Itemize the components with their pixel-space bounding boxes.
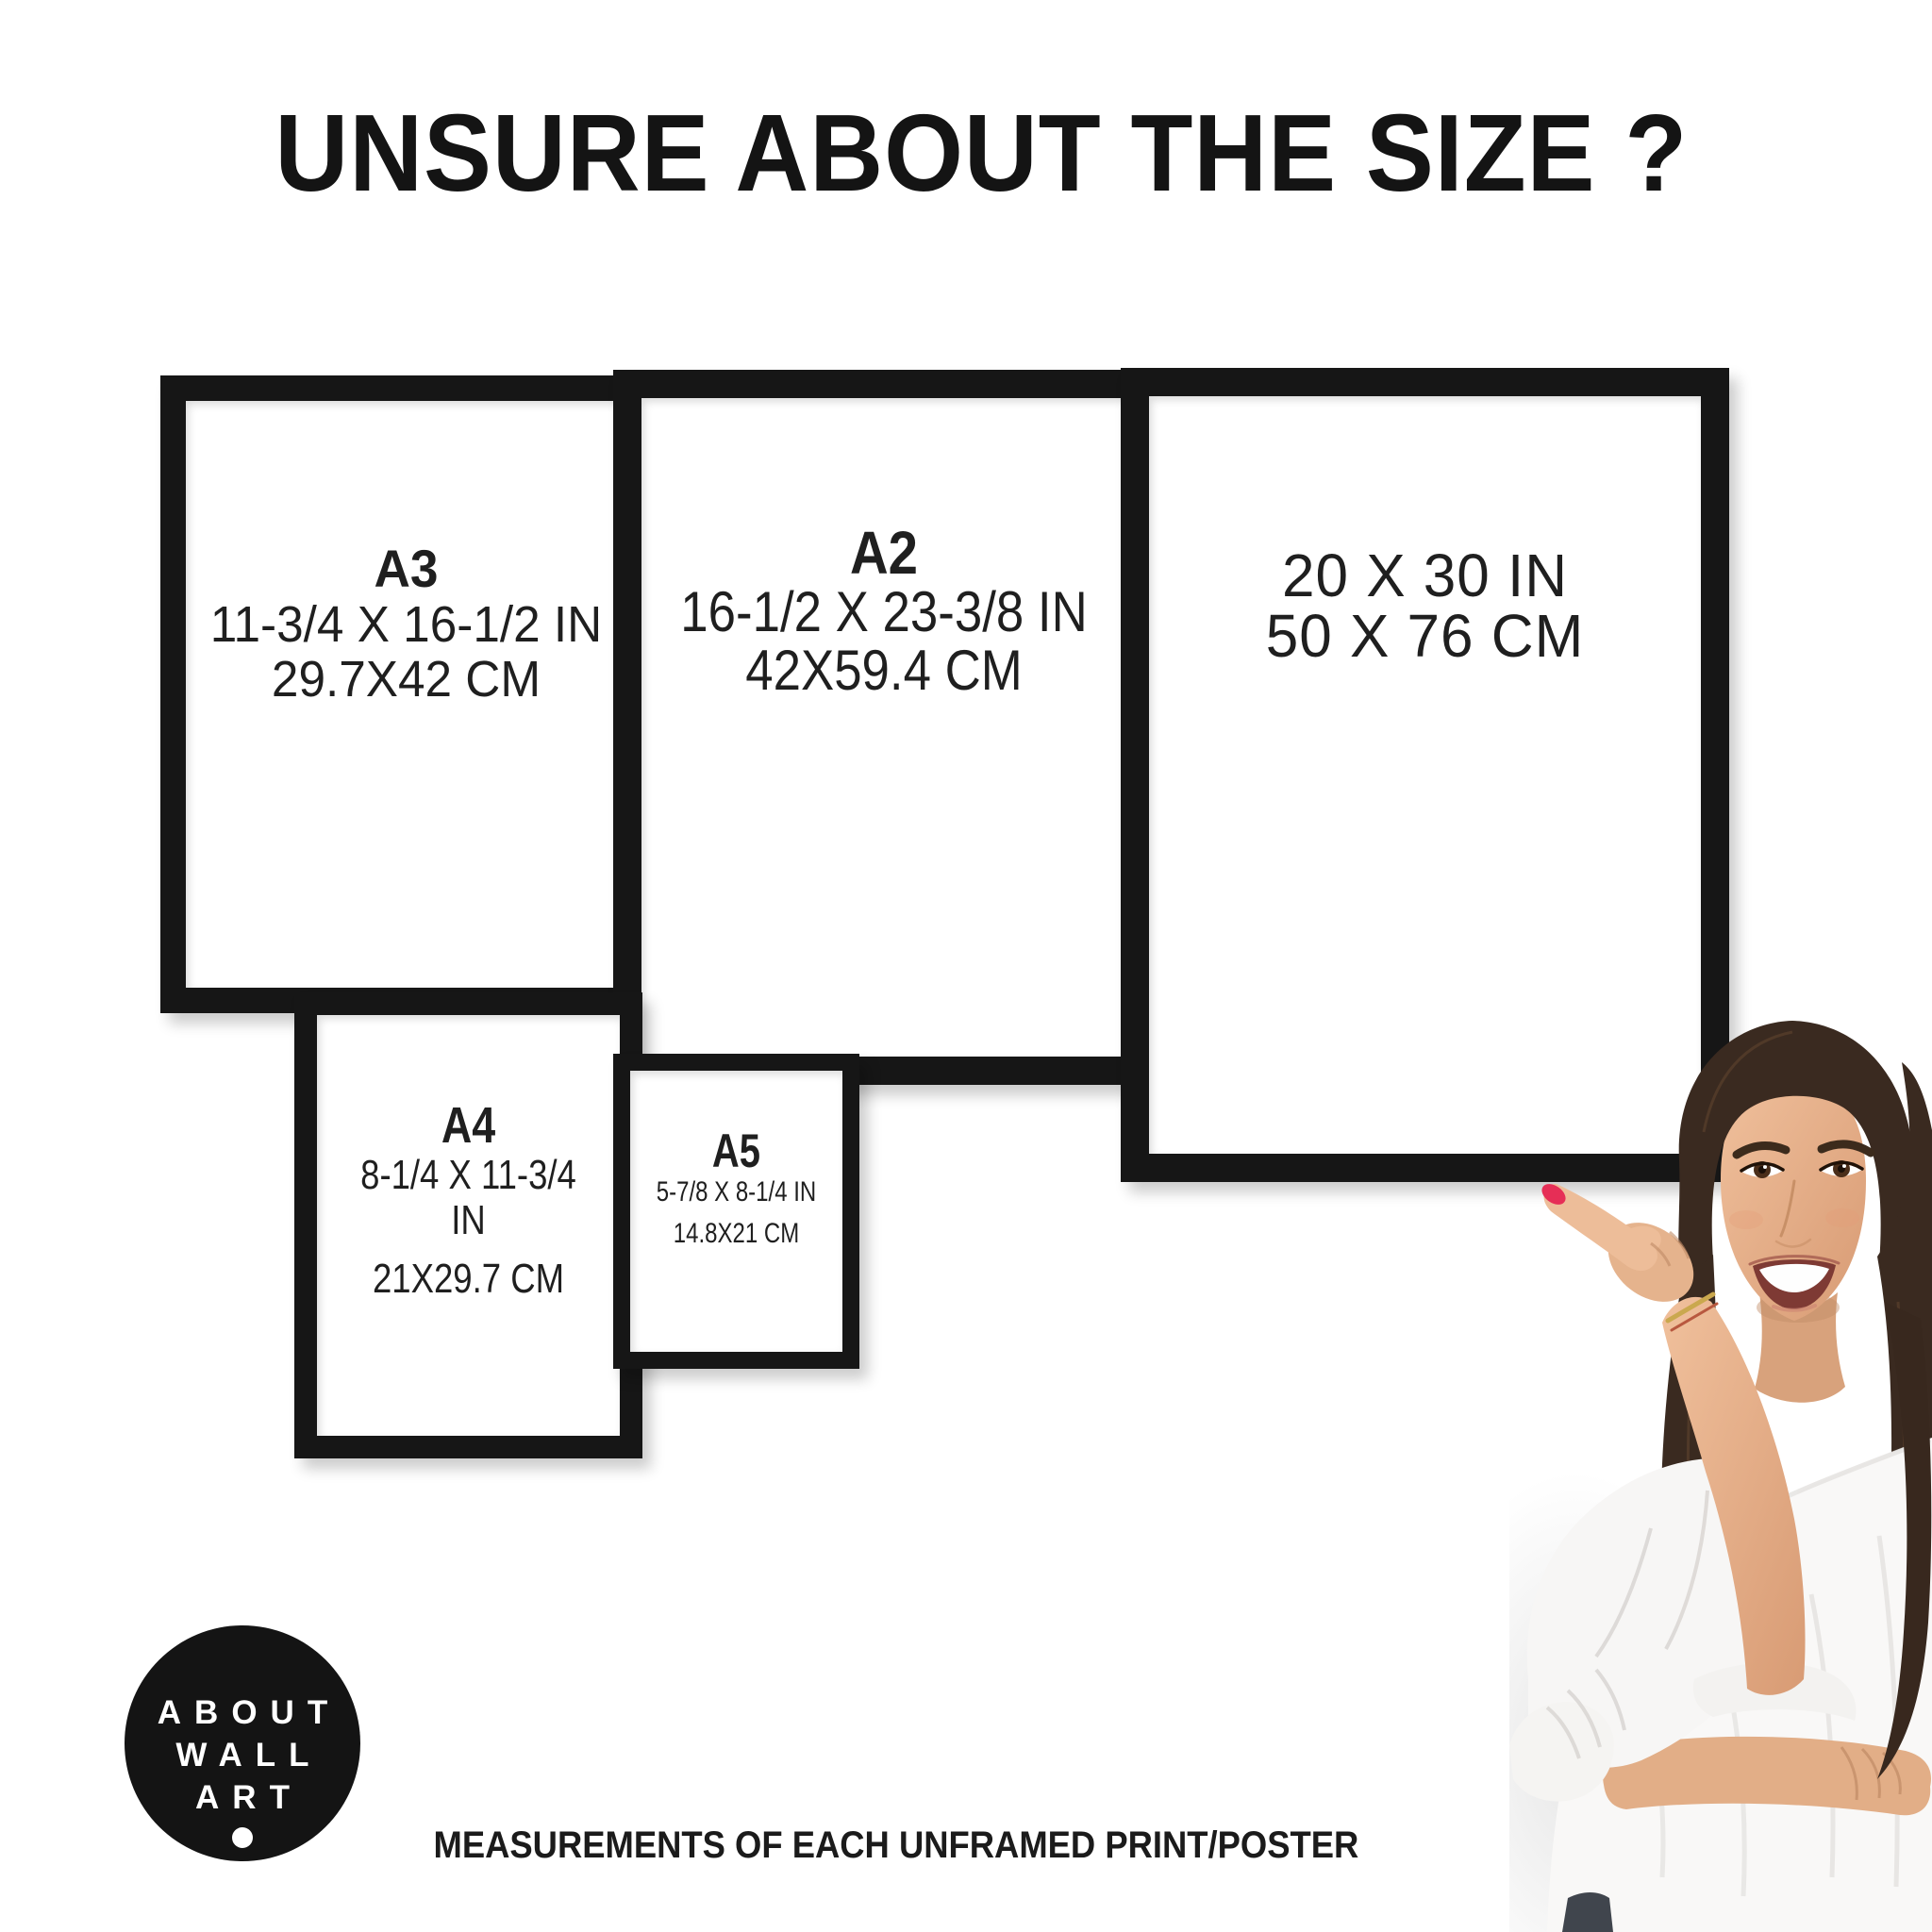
size-label: A3 xyxy=(197,541,616,597)
page-title: UNSURE ABOUT THE SIZE ? xyxy=(0,96,1932,209)
brand-logo-line: WALL xyxy=(125,1734,360,1776)
size-inches: 20 X 30 IN xyxy=(1158,545,1692,606)
size-inches: 5-7/8 X 8-1/4 IN xyxy=(652,1176,822,1208)
size-frame-a4-text: A4 8-1/4 X 11-3/4 IN 21X29.7 CM xyxy=(342,1098,593,1302)
size-label: A4 xyxy=(342,1098,593,1153)
jeans-hint xyxy=(1562,1892,1613,1932)
woman-photo xyxy=(1509,1019,1932,1932)
brand-logo-line: ART xyxy=(125,1776,360,1819)
size-frame-a4: A4 8-1/4 X 11-3/4 IN 21X29.7 CM xyxy=(294,992,642,1458)
size-frame-a5: A5 5-7/8 X 8-1/4 IN 14.8X21 CM xyxy=(613,1054,859,1369)
size-label: A5 xyxy=(652,1125,822,1176)
size-frame-a5-text: A5 5-7/8 X 8-1/4 IN 14.8X21 CM xyxy=(652,1125,822,1250)
size-inches: 8-1/4 X 11-3/4 IN xyxy=(342,1153,593,1243)
footer-caption-text: MEASUREMENTS OF EACH UNFRAMED PRINT/POST… xyxy=(434,1824,1359,1866)
size-cm: 21X29.7 CM xyxy=(342,1257,593,1302)
size-inches: 11-3/4 X 16-1/2 IN xyxy=(197,597,616,652)
size-inches: 16-1/2 X 23-3/8 IN xyxy=(671,583,1097,641)
brand-logo-line: ABOUT xyxy=(125,1691,360,1734)
size-cm: 14.8X21 CM xyxy=(652,1218,822,1250)
page-title-text: UNSURE ABOUT THE SIZE ? xyxy=(275,96,1688,209)
size-frame-a3: A3 11-3/4 X 16-1/2 IN 29.7X42 CM xyxy=(160,375,652,1013)
size-cm: 29.7X42 CM xyxy=(197,652,616,707)
size-frame-a2: A2 16-1/2 X 23-3/8 IN 42X59.4 CM xyxy=(613,370,1155,1085)
size-cm: 42X59.4 CM xyxy=(671,641,1097,700)
size-frame-20x30-text: 20 X 30 IN 50 X 76 CM xyxy=(1158,545,1692,666)
size-cm: 50 X 76 CM xyxy=(1158,606,1692,666)
size-frame-a2-text: A2 16-1/2 X 23-3/8 IN 42X59.4 CM xyxy=(671,523,1097,700)
size-guide-poster: UNSURE ABOUT THE SIZE ? A3 11-3/4 X 16-1… xyxy=(0,0,1932,1932)
size-frame-a3-text: A3 11-3/4 X 16-1/2 IN 29.7X42 CM xyxy=(197,541,616,707)
size-label: A2 xyxy=(671,523,1097,583)
